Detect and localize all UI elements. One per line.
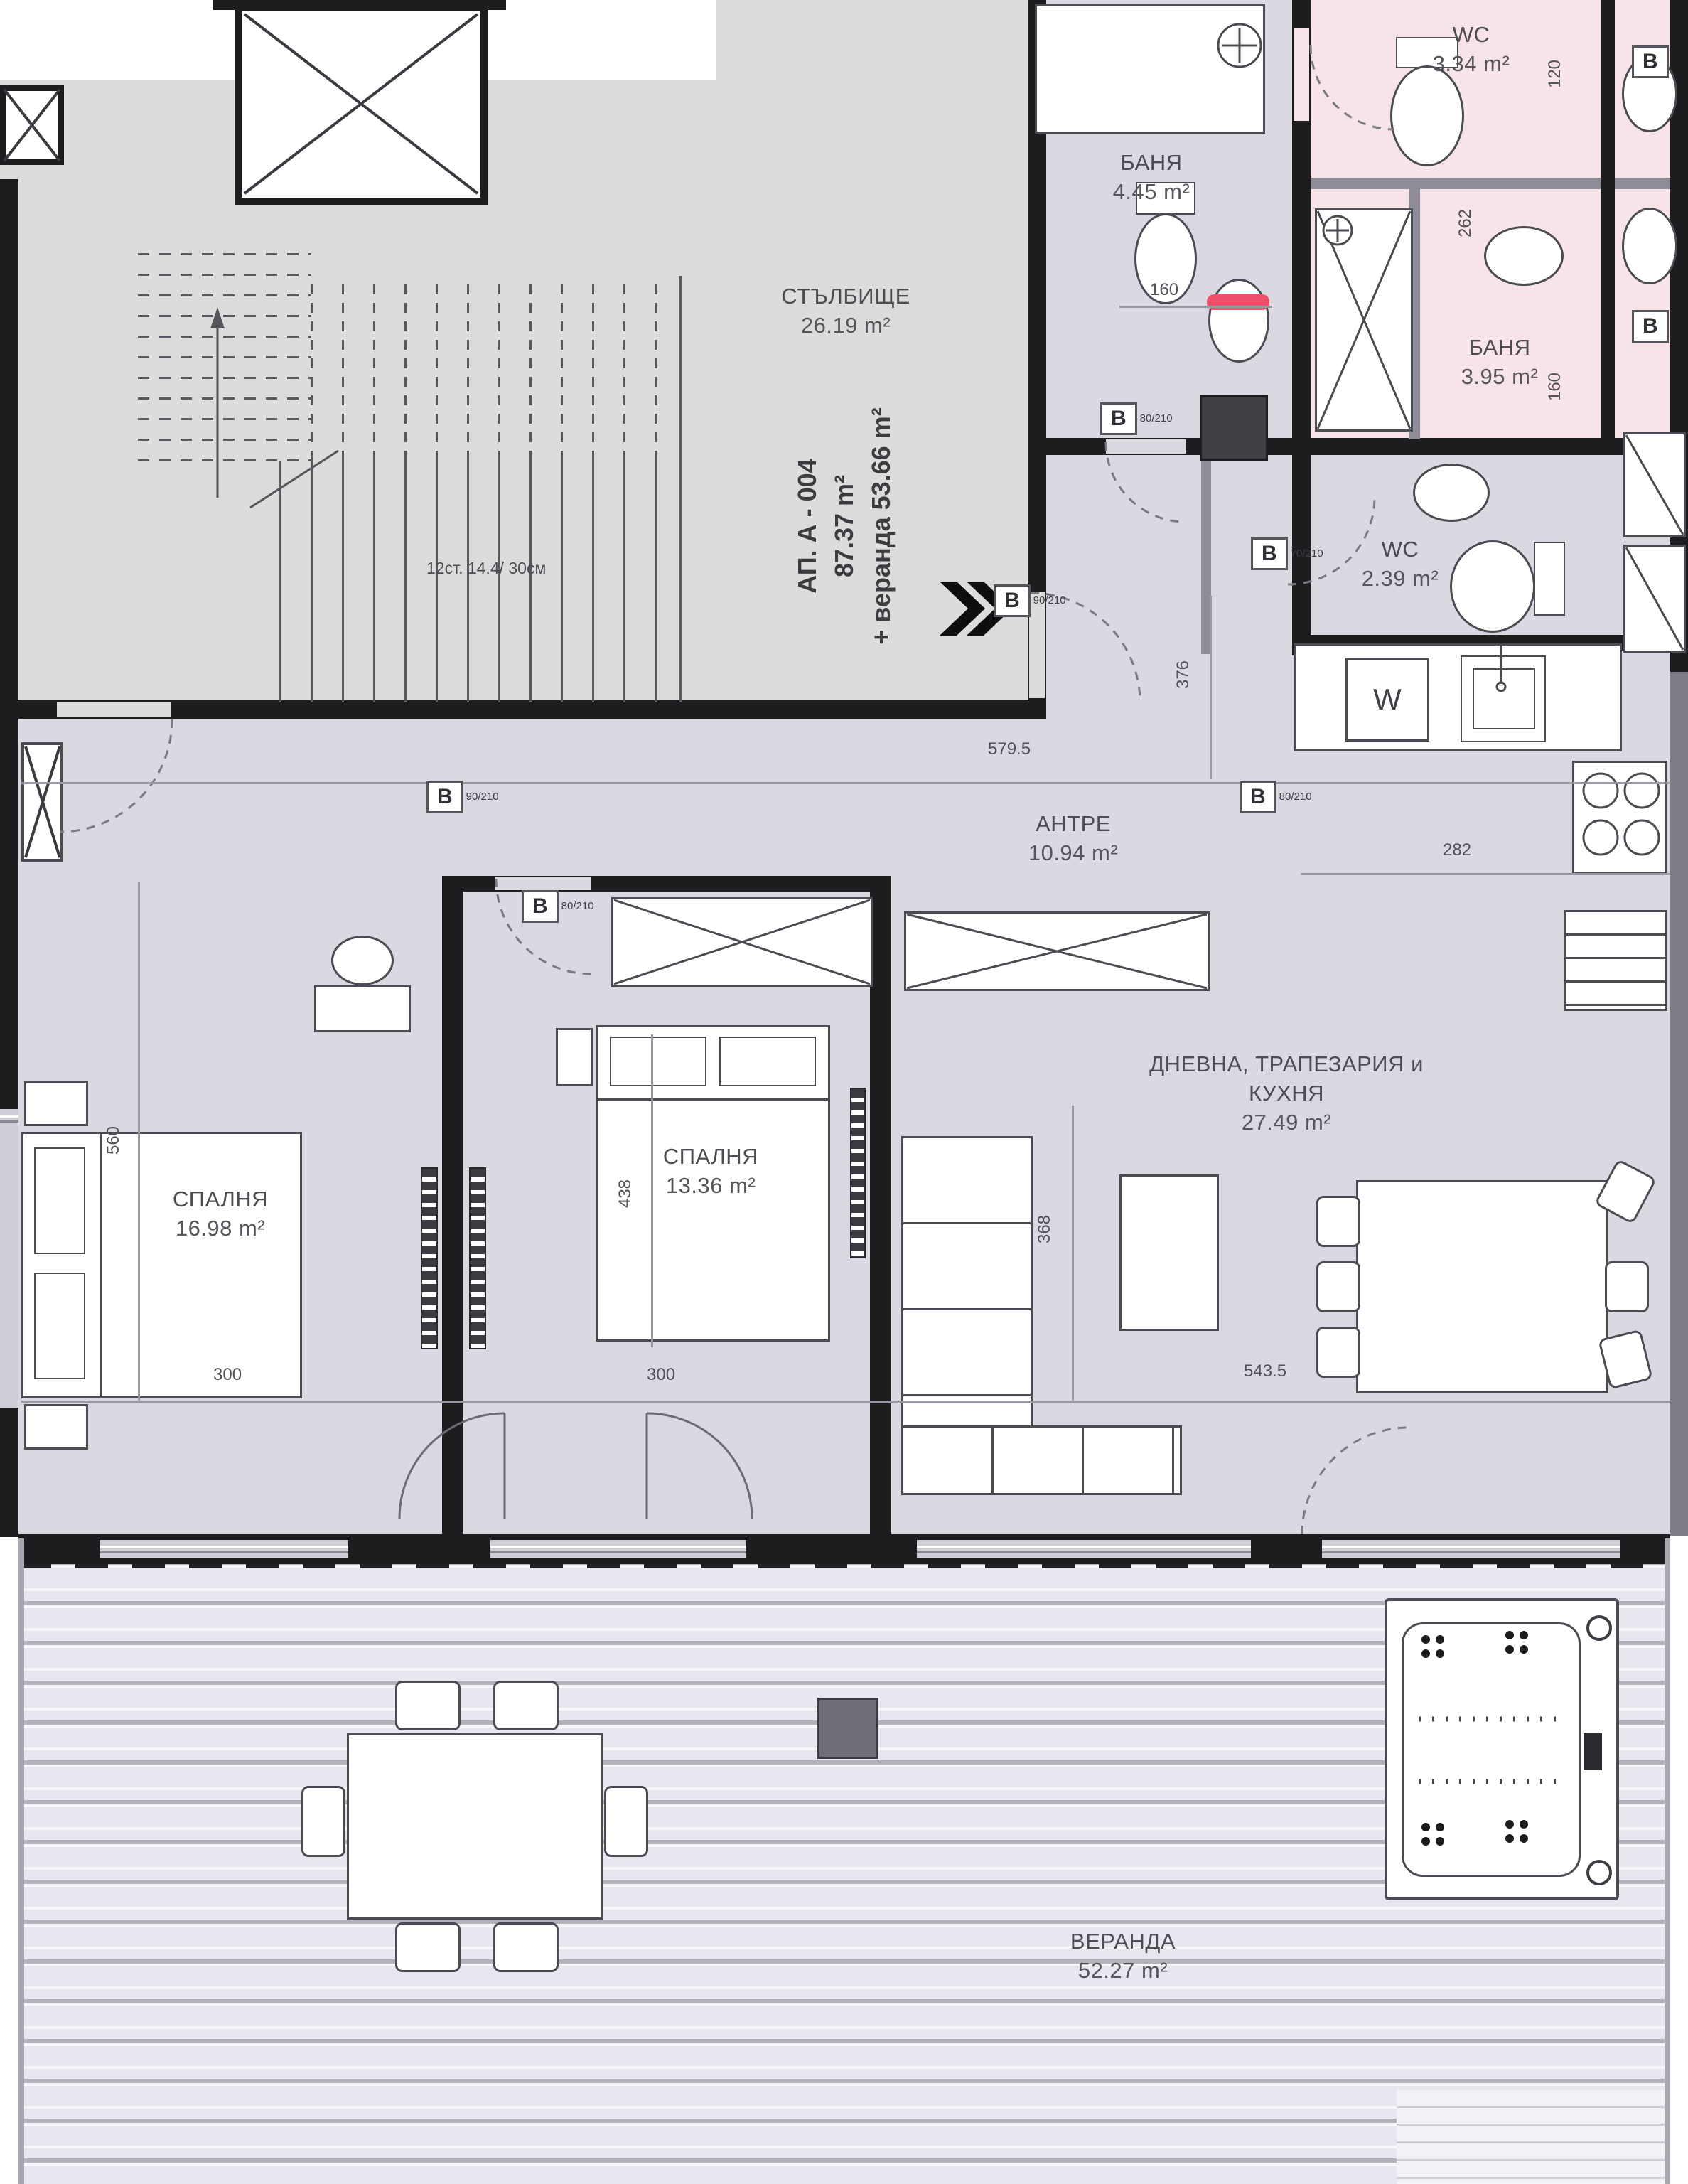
stair-rail: [679, 276, 682, 702]
veranda-chair: [604, 1786, 648, 1857]
pillow: [34, 1273, 85, 1379]
dimension-line: [1301, 873, 1670, 875]
sink: [1208, 279, 1269, 363]
veranda-chair: [493, 1922, 559, 1972]
room-area: 4.45 m²: [1052, 177, 1251, 206]
room-label-bath2: БАНЯ 3.95 m²: [1397, 333, 1603, 391]
room-name: СПАЛНЯ: [100, 1184, 341, 1214]
bed-line: [100, 1134, 102, 1397]
veranda-edge: [18, 1538, 24, 2184]
toilet-bowl: [1390, 65, 1464, 166]
dimension-line: [21, 782, 1670, 784]
door-marker-right1: В: [1632, 45, 1669, 78]
staircase-floor-upper: [716, 0, 1028, 80]
room-name: АНТРЕ: [945, 809, 1201, 838]
radiator: [850, 1088, 866, 1258]
elevator-shaft: [235, 4, 488, 205]
apartment-id: АП. А - 004: [789, 355, 826, 697]
room-label-living: ДНЕВНА, ТРАПЕЗАРИЯ и КУХНЯ 27.49 m²: [1087, 1049, 1485, 1137]
pillow: [719, 1037, 816, 1086]
door-marker-bed1: В 90/210: [426, 781, 496, 813]
room-area: 3.34 m²: [1372, 49, 1571, 78]
vent-shaft: [1623, 432, 1686, 537]
veranda-chair: [493, 1681, 559, 1730]
door-opening: [57, 702, 171, 717]
kitchen-sink-basin: [1473, 668, 1535, 729]
nightstand: [24, 1081, 88, 1126]
room-area: 27.49 m²: [1087, 1108, 1485, 1137]
dim-kitchen-width: 282: [1443, 840, 1471, 860]
door-opening: [1294, 28, 1309, 121]
kitchen-cabinet: [1564, 910, 1667, 1011]
room-label-wc2: WC 2.39 m²: [1315, 535, 1485, 593]
dim-living-width: 543.5: [1244, 1361, 1286, 1381]
bed-line: [597, 1098, 829, 1101]
dimension-line: [1210, 596, 1212, 779]
wall: [1311, 178, 1670, 189]
stair-upper-flight: [128, 235, 311, 461]
desk-chair: [331, 936, 394, 985]
dining-table: [1356, 1180, 1608, 1393]
room-name: СТЪЛБИЩЕ: [718, 282, 974, 311]
window: [917, 1540, 1251, 1558]
dim-living-height: 368: [1035, 1215, 1055, 1243]
room-area: 10.94 m²: [945, 838, 1201, 867]
coffee-table: [1119, 1174, 1219, 1331]
door-opening: [1106, 439, 1186, 454]
dining-chair: [1316, 1261, 1360, 1312]
room-area: 2.39 m²: [1315, 564, 1485, 593]
room-area: 3.95 m²: [1397, 362, 1603, 391]
dim-bed1-width: 300: [213, 1365, 242, 1385]
shower-cabin: [1315, 208, 1413, 432]
apartment-veranda-note: + веранда 53.66 m²: [863, 355, 900, 697]
washing-machine-letter: W: [1345, 658, 1429, 742]
door-opening: [495, 877, 591, 890]
door-marker-wc2: В 70/210: [1251, 537, 1321, 570]
wall: [1601, 0, 1615, 439]
room-label-hall: АНТРЕ 10.94 m²: [945, 809, 1201, 867]
door-marker-bath1: В 80/210: [1100, 402, 1170, 435]
jacuzzi-basin: [1402, 1622, 1581, 1877]
stair-note: 12ст. 14.4/ 30см: [426, 559, 546, 578]
dim-bed1-height: 560: [104, 1126, 124, 1155]
window: [100, 1540, 348, 1558]
room-label-wc1: WC 3.34 m²: [1372, 20, 1571, 78]
boiler: [1200, 395, 1268, 461]
room-area: 16.98 m²: [100, 1214, 341, 1243]
dining-chair: [1316, 1196, 1360, 1247]
shower-cabin: [1035, 4, 1265, 134]
apartment-label: АП. А - 004 87.37 m² + веранда 53.66 m²: [789, 355, 903, 697]
veranda-chair: [301, 1786, 345, 1857]
veranda-steps: [1397, 2090, 1667, 2184]
dining-chair: [1605, 1261, 1649, 1312]
nightstand: [556, 1028, 593, 1086]
dim-sink-width: 262: [1456, 209, 1475, 237]
bedroom1-shaft: [21, 742, 63, 862]
dim-hall-width: 579.5: [988, 739, 1031, 759]
room-area: 26.19 m²: [718, 311, 974, 340]
dim-bed2-width: 300: [647, 1365, 675, 1385]
sofa-horizontal: [901, 1425, 1182, 1495]
room-area: 52.27 m²: [988, 1956, 1258, 1985]
room-label-bedroom2: СПАЛНЯ 13.36 m²: [590, 1142, 832, 1200]
wall: [0, 179, 18, 719]
door-marker-right2: В: [1632, 310, 1669, 343]
jacuzzi-control: [1584, 1733, 1602, 1770]
window: [0, 1109, 18, 1408]
vent-shaft: [1623, 545, 1686, 653]
wardrobe-bedroom2: [611, 897, 873, 987]
room-name: ВЕРАНДА: [988, 1927, 1258, 1956]
room-name: КУХНЯ: [1087, 1078, 1485, 1108]
room-label-bedroom1: СПАЛНЯ 16.98 m²: [100, 1184, 341, 1243]
door-marker-hall: В 80/210: [1240, 781, 1309, 813]
cooktop: [1572, 761, 1667, 874]
room-name: БАНЯ: [1052, 148, 1251, 177]
apartment-area: 87.37 m²: [826, 355, 863, 697]
dimension-line: [1072, 1106, 1074, 1401]
pillow: [610, 1037, 706, 1086]
room-name: СПАЛНЯ: [590, 1142, 832, 1171]
sink: [1622, 208, 1677, 284]
veranda-table: [347, 1733, 603, 1920]
sink: [1484, 226, 1564, 286]
room-name: БАНЯ: [1397, 333, 1603, 362]
nightstand: [24, 1404, 88, 1450]
dimension-line: [138, 882, 140, 1401]
dining-chair: [1316, 1327, 1360, 1378]
door-marker-front: В 90/210: [994, 584, 1063, 617]
toilet-tank: [1534, 542, 1565, 616]
room-name: WC: [1372, 20, 1571, 49]
pillow: [34, 1147, 85, 1254]
radiator: [469, 1167, 486, 1349]
sink: [1413, 464, 1490, 522]
small-shaft: [0, 85, 64, 165]
wardrobe-living: [904, 911, 1210, 991]
kitchen-counter: [1294, 643, 1622, 751]
wall: [870, 876, 891, 1537]
veranda-edge: [1665, 1538, 1670, 2184]
desk: [314, 985, 411, 1032]
window: [1322, 1540, 1620, 1558]
veranda-chair: [395, 1922, 461, 1972]
room-area: 13.36 m²: [590, 1171, 832, 1200]
veranda-chair: [395, 1681, 461, 1730]
dim-hall-height: 376: [1173, 660, 1193, 689]
radiator: [421, 1167, 438, 1349]
stair-treads-dashed-overlay: [250, 276, 681, 457]
dim-bath-door: 160: [1150, 280, 1178, 300]
wall: [1670, 672, 1688, 1536]
floor-plan-canvas: 12ст. 14.4/ 30см АП. А - 004 87.37 m² + …: [0, 0, 1688, 2184]
door-marker-bed2: В 80/210: [522, 890, 591, 923]
room-label-bath1: БАНЯ 4.45 m²: [1052, 148, 1251, 206]
room-label-staircase: СТЪЛБИЩЕ 26.19 m²: [718, 282, 974, 340]
room-name: ДНЕВНА, ТРАПЕЗАРИЯ и: [1087, 1049, 1485, 1078]
wall: [442, 876, 463, 1537]
room-label-veranda: ВЕРАНДА 52.27 m²: [988, 1927, 1258, 1985]
planter: [817, 1698, 878, 1759]
room-name: WC: [1315, 535, 1485, 564]
dimension-line: [21, 1401, 1670, 1403]
window: [490, 1540, 746, 1558]
dimension-line: [1119, 306, 1272, 308]
